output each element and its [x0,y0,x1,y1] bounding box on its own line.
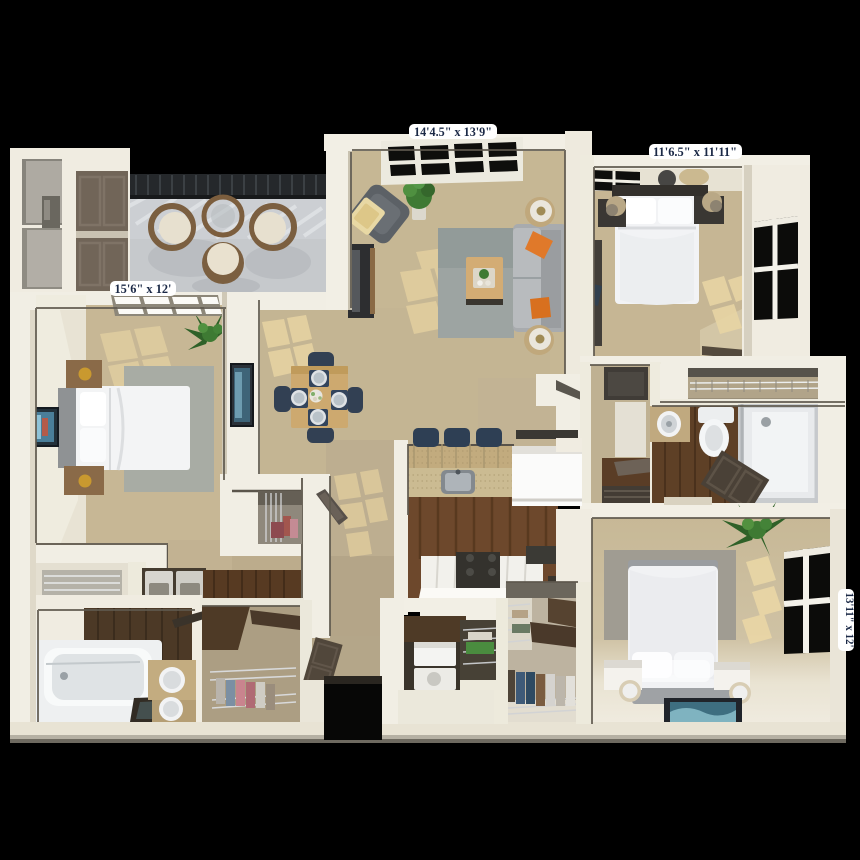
svg-text:14'4.5" x 13'9": 14'4.5" x 13'9" [414,125,492,139]
svg-text:11'6.5" x 11'11": 11'6.5" x 11'11" [653,145,737,159]
svg-text:13'11" x 12': 13'11" x 12' [843,593,857,648]
svg-text:15'6" x 12': 15'6" x 12' [115,282,172,296]
